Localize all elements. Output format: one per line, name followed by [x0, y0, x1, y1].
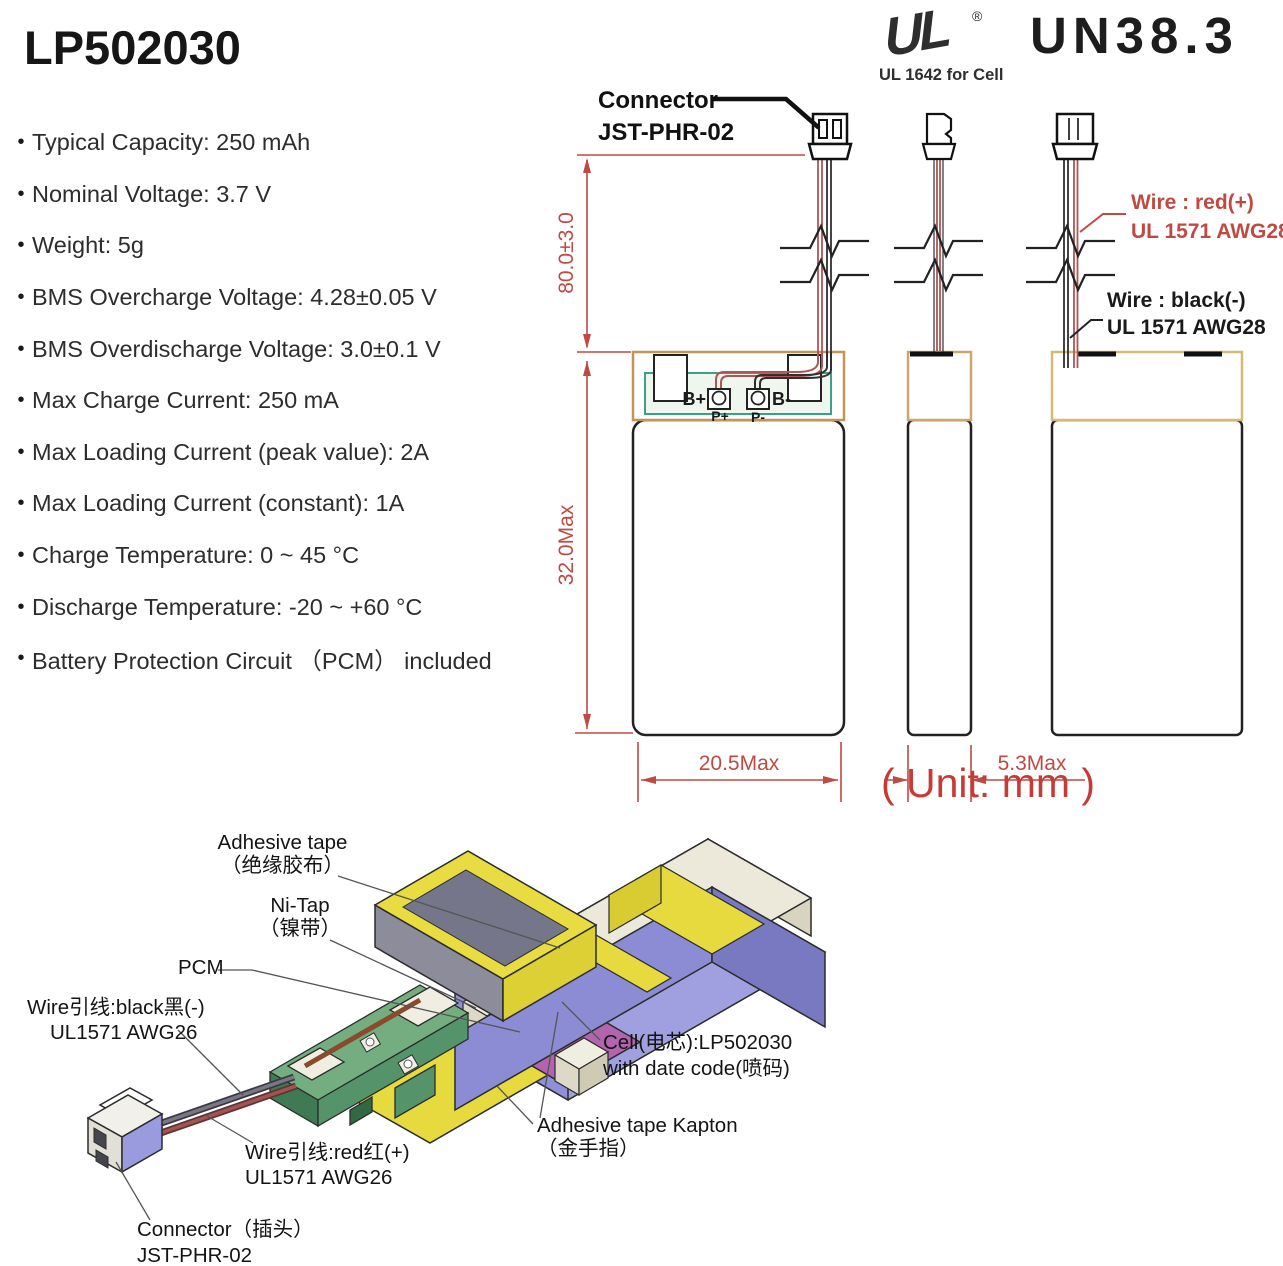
terminal-p-plus: P+	[711, 408, 729, 424]
engineering-drawing: 80.0±3.0 32.0Max 20.5Max 5.3Max ( Unit: …	[0, 0, 1283, 810]
label-ni-tap-line1: Ni-Tap	[230, 894, 370, 918]
label-cell-line1: Cell(电芯):LP502030	[603, 1031, 792, 1055]
datasheet-page: LP502030 UL ® UL 1642 for Cell UN38.3 •T…	[0, 0, 1283, 1266]
connector-callout-line2: JST-PHR-02	[598, 119, 734, 146]
wire-red-label-line2: UL 1571 AWG28	[1131, 220, 1283, 243]
front-view: B+ B- P+ P-	[598, 87, 869, 735]
back-view: Wire : red(+) UL 1571 AWG28 Wire : black…	[1026, 114, 1283, 735]
terminal-b-plus: B+	[682, 389, 706, 409]
connector-iso	[88, 1088, 162, 1172]
dim-body-height: 32.0Max	[555, 504, 578, 585]
unit-label: ( Unit: mm )	[881, 760, 1095, 806]
wire-black-label-line1: Wire : black(-)	[1107, 289, 1246, 312]
label-kapton-line1: Adhesive tape Kapton	[537, 1114, 738, 1138]
label-wire-black-line1: Wire引线:black黑(-)	[27, 996, 205, 1020]
label-kapton-line2: （金手指）	[537, 1137, 640, 1161]
label-connector-line2: JST-PHR-02	[137, 1244, 252, 1266]
terminal-p-minus: P-	[751, 409, 765, 425]
label-adhesive-tape-line1: Adhesive tape	[180, 831, 385, 855]
dim-wire-length: 80.0±3.0	[555, 212, 578, 294]
wire-black-label-line2: UL 1571 AWG28	[1107, 316, 1266, 339]
label-cell-line2: with date code(喷码)	[603, 1057, 790, 1081]
side-view	[894, 114, 983, 735]
connector-callout-line1: Connector	[598, 87, 718, 114]
label-wire-black-line2: UL1571 AWG26	[50, 1021, 197, 1045]
label-ni-tap-line2: （镍带）	[230, 917, 370, 941]
terminal-b-minus: B-	[772, 389, 791, 409]
label-pcm: PCM	[178, 956, 224, 980]
label-wire-red-line2: UL1571 AWG26	[245, 1166, 392, 1190]
label-wire-red-line1: Wire引线:red红(+)	[245, 1141, 410, 1165]
connector-back	[1053, 114, 1097, 159]
wire-red-label-line1: Wire : red(+)	[1131, 191, 1254, 214]
label-connector-line1: Connector（插头）	[137, 1218, 314, 1242]
label-adhesive-tape-line2: （绝缘胶布）	[180, 854, 385, 878]
connector-side	[923, 114, 955, 159]
connector-front	[809, 114, 851, 159]
dim-body-width: 20.5Max	[699, 752, 780, 775]
